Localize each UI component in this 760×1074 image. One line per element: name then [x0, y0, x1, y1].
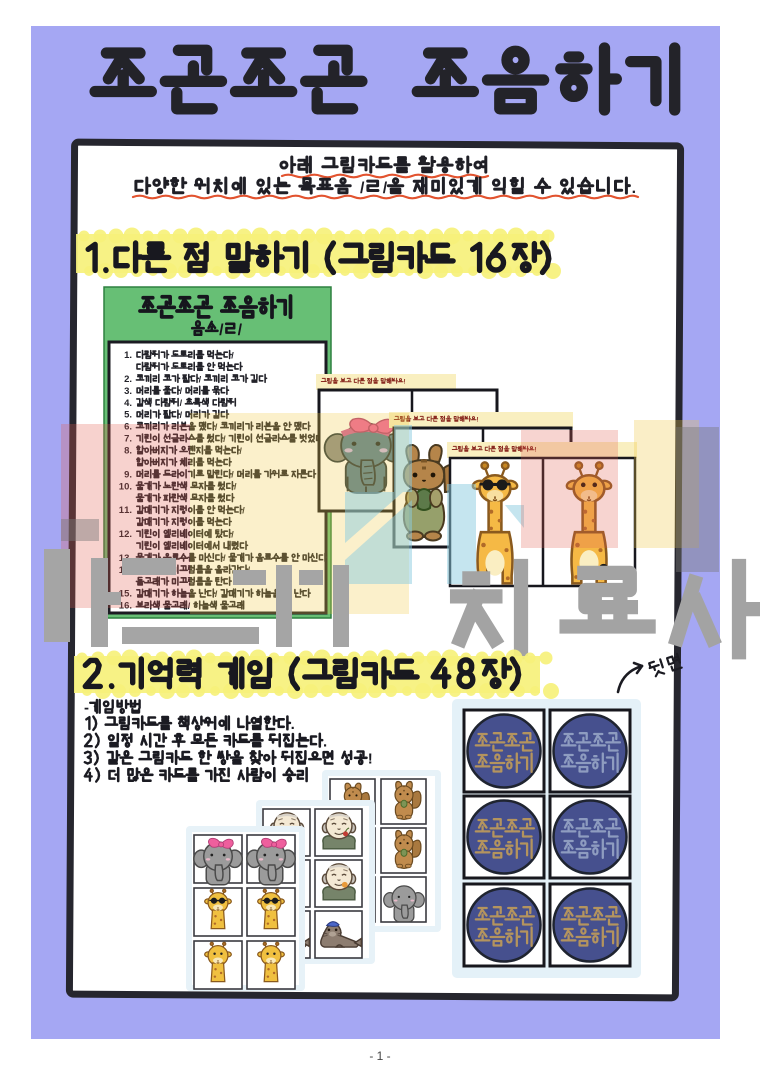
- svg-text:.: .: [291, 716, 295, 733]
- svg-text:.: .: [129, 410, 132, 421]
- svg-text:.: .: [323, 734, 327, 751]
- svg-text:.: .: [129, 374, 132, 385]
- svg-text:!: !: [477, 416, 479, 423]
- svg-text:.: .: [129, 350, 132, 361]
- svg-text:.: .: [129, 386, 132, 397]
- svg-text:.: .: [129, 398, 132, 409]
- svg-text:/: /: [360, 180, 365, 197]
- svg-text:/: /: [238, 322, 243, 339]
- svg-text:!: !: [368, 751, 373, 768]
- svg-text:-: -: [84, 700, 89, 717]
- svg-text:/: /: [219, 322, 224, 339]
- svg-text:.: .: [632, 180, 636, 197]
- svg-text:!: !: [404, 378, 406, 385]
- svg-text:/: /: [383, 180, 388, 197]
- svg-text:- 1 -: - 1 -: [369, 1049, 390, 1063]
